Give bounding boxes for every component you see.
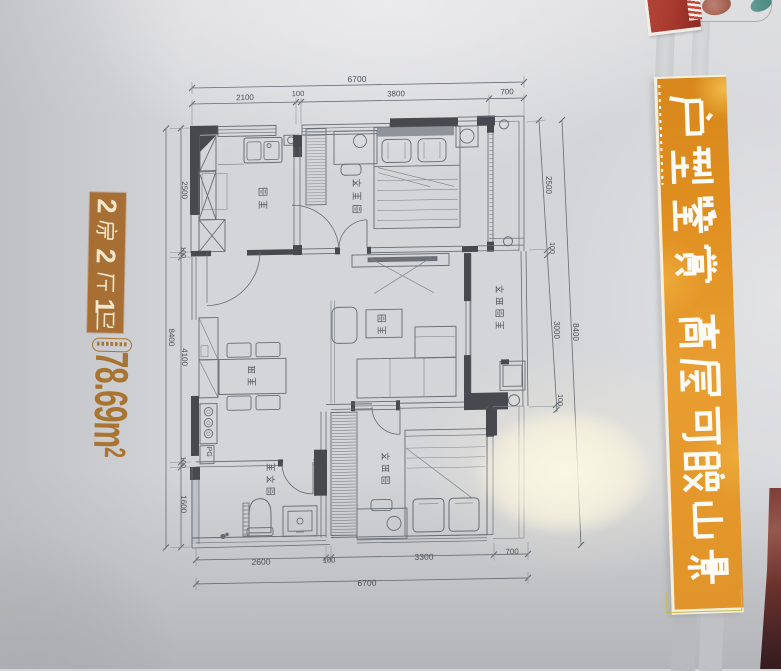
svg-text:PG: PG <box>205 447 212 457</box>
svg-text:2100: 2100 <box>236 93 254 102</box>
svg-text:3800: 3800 <box>387 89 405 98</box>
svg-text:100: 100 <box>292 89 305 98</box>
svg-text:700: 700 <box>500 87 514 96</box>
svg-text:6700: 6700 <box>348 74 367 84</box>
svg-text:4100: 4100 <box>180 348 189 367</box>
svg-text:2500: 2500 <box>180 181 189 200</box>
svg-text:8400: 8400 <box>571 323 580 341</box>
svg-text:8400: 8400 <box>167 328 176 347</box>
svg-text:2500: 2500 <box>544 176 553 194</box>
svg-text:3000: 3000 <box>552 321 561 339</box>
svg-text:100: 100 <box>556 394 563 406</box>
svg-text:2600: 2600 <box>252 557 271 567</box>
svg-text:100: 100 <box>179 456 186 468</box>
svg-text:100: 100 <box>548 242 555 254</box>
svg-text:1600: 1600 <box>179 495 188 514</box>
svg-text:6700: 6700 <box>358 578 377 588</box>
svg-text:3300: 3300 <box>415 552 434 562</box>
svg-text:100: 100 <box>323 555 336 564</box>
svg-text:700: 700 <box>505 547 519 556</box>
svg-text:100: 100 <box>179 246 186 258</box>
